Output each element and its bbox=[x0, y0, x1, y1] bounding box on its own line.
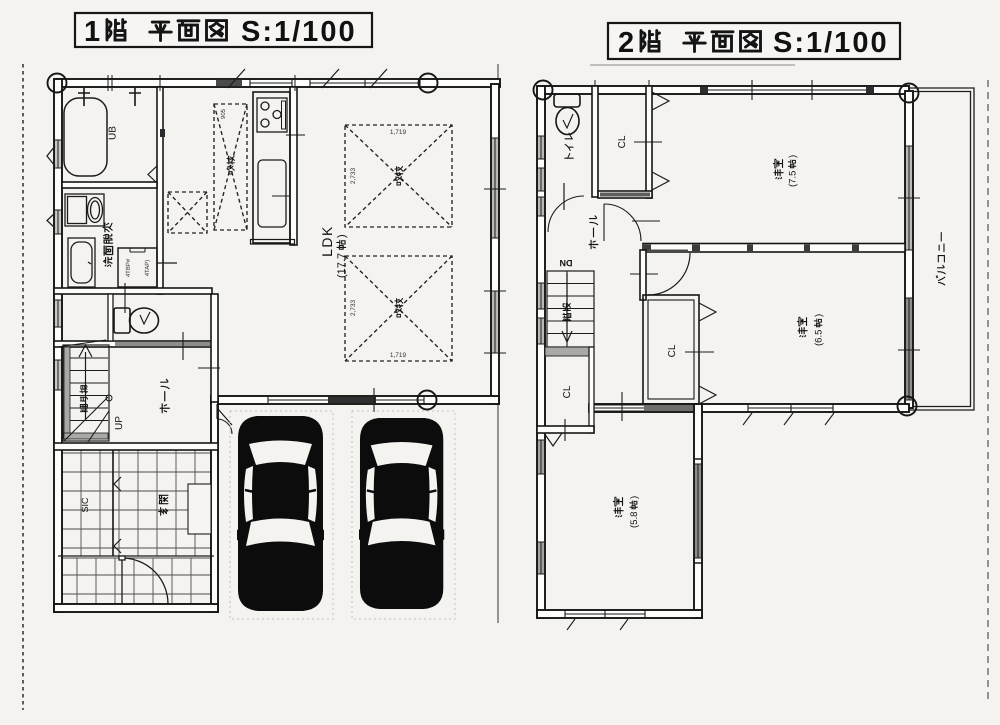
svg-text:CL: CL bbox=[562, 385, 573, 398]
svg-text:(5.8: (5.8 bbox=[629, 512, 640, 528]
svg-text:DN: DN bbox=[560, 258, 573, 268]
svg-text:LDK: LDK bbox=[319, 225, 335, 257]
svg-text:4TBP#: 4TBP# bbox=[125, 258, 132, 277]
svg-text:1: 1 bbox=[84, 16, 101, 48]
svg-text:CL: CL bbox=[667, 344, 678, 357]
svg-text:2: 2 bbox=[618, 27, 635, 59]
svg-text:CL: CL bbox=[617, 135, 628, 148]
svg-text:(6.5: (6.5 bbox=[814, 330, 825, 346]
svg-text:1,719: 1,719 bbox=[390, 352, 407, 359]
svg-text:2,733: 2,733 bbox=[350, 299, 357, 316]
svg-text:UP: UP bbox=[114, 416, 125, 430]
svg-text:(17.7: (17.7 bbox=[336, 253, 348, 278]
svg-text:S:1/100: S:1/100 bbox=[241, 16, 357, 48]
svg-text:): ) bbox=[814, 314, 825, 317]
svg-text:2,733: 2,733 bbox=[350, 167, 357, 184]
svg-text:(7.5: (7.5 bbox=[788, 171, 799, 187]
svg-text:SIC: SIC bbox=[80, 497, 90, 513]
svg-text:): ) bbox=[629, 496, 640, 499]
svg-text:905: 905 bbox=[220, 108, 227, 119]
svg-text:4TAP): 4TAP) bbox=[144, 260, 151, 277]
svg-text:): ) bbox=[336, 234, 348, 238]
svg-text:1,719: 1,719 bbox=[390, 129, 407, 136]
svg-text:S:1/100: S:1/100 bbox=[773, 27, 889, 59]
svg-text:): ) bbox=[788, 155, 799, 158]
svg-text:UB: UB bbox=[108, 126, 119, 140]
